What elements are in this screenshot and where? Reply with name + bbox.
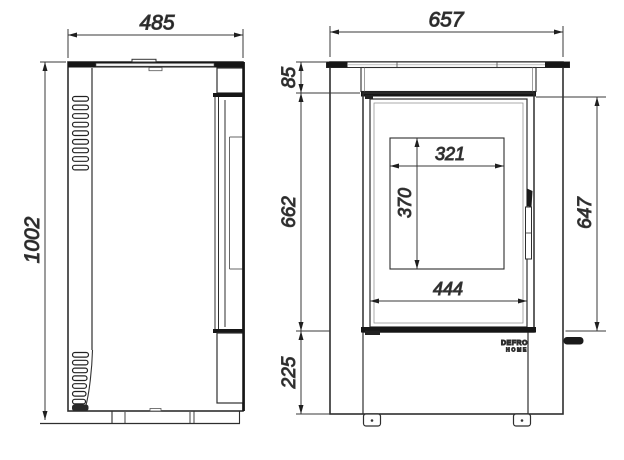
side-front-edge <box>242 62 245 411</box>
dim-base-height: 225 <box>279 331 330 414</box>
front-top-plate-left-cap <box>327 62 348 68</box>
dim-662-label: 662 <box>279 196 300 228</box>
dim-321-label: 321 <box>435 144 465 164</box>
front-foot-right-bolt <box>521 419 524 422</box>
dim-front-width: 657 <box>330 9 563 58</box>
side-bottom-box-profile <box>217 333 243 403</box>
side-top-tab <box>132 59 156 62</box>
side-view <box>40 59 245 423</box>
dim-485-label: 485 <box>139 12 174 35</box>
dim-444-label: 444 <box>433 279 463 299</box>
stove-dimension-drawing: DEFRO HOME 485 657 <box>0 0 624 460</box>
front-door-hinge-top <box>365 95 373 99</box>
dim-85-label: 85 <box>279 67 300 89</box>
side-door-top-band <box>213 93 243 97</box>
front-upper-panel <box>361 68 536 92</box>
dim-657-label: 657 <box>428 9 464 32</box>
technical-drawing-page: DEFRO HOME 485 657 <box>0 0 624 460</box>
front-door-bottom-band <box>361 327 536 333</box>
side-top-box-profile <box>217 68 243 93</box>
side-top-notch <box>149 68 162 71</box>
front-top-plate-right-cap <box>545 62 570 68</box>
side-vent-grille-top <box>73 97 89 170</box>
side-door-bottom-band <box>213 329 243 333</box>
damper-handle <box>564 337 584 345</box>
dim-647-label: 647 <box>575 196 596 229</box>
dim-overall-height: 1002 <box>21 62 66 420</box>
side-top-plate-edge <box>96 63 214 66</box>
dim-370-label: 370 <box>395 188 415 218</box>
dim-door-section-height: 662 <box>279 93 330 331</box>
front-foot-left-bolt <box>371 419 374 422</box>
dim-225-label: 225 <box>279 356 300 389</box>
front-view: DEFRO HOME <box>327 62 584 426</box>
front-door-hinge-bottom <box>365 331 380 336</box>
brand-logo-line1: DEFRO <box>501 340 528 347</box>
brand-logo-line2: HOME <box>506 348 528 354</box>
dim-1002-label: 1002 <box>21 216 44 263</box>
side-grille-base <box>72 405 89 412</box>
dim-side-width: 485 <box>68 12 243 59</box>
